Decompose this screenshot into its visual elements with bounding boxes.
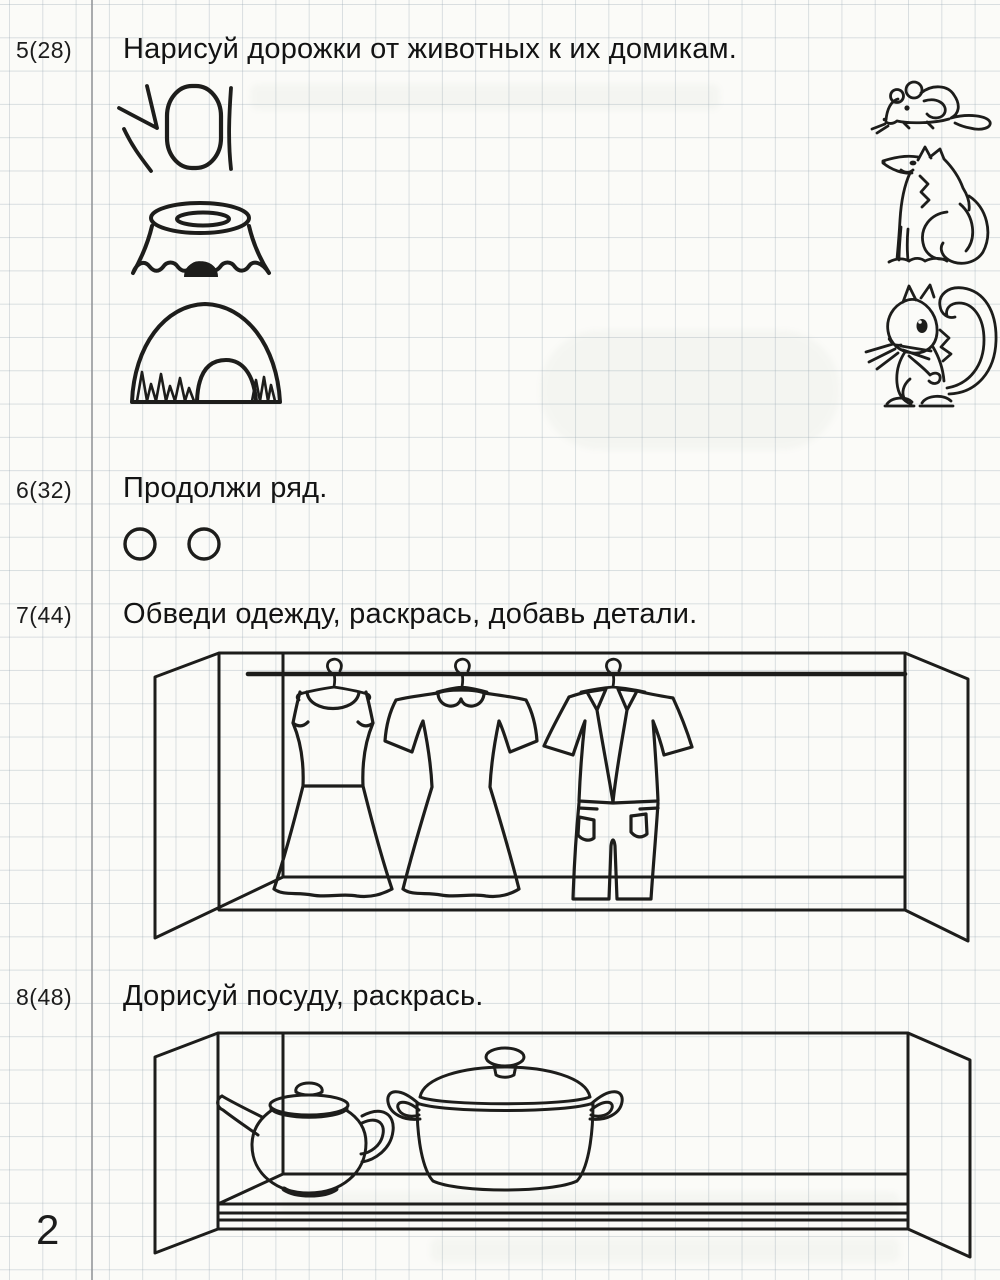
squirrel-eye — [917, 319, 928, 333]
cooking-pot-illustration — [388, 1048, 622, 1190]
wardrobe-illustration — [155, 653, 968, 941]
den-illustration — [132, 304, 280, 402]
shelf-frame — [155, 1033, 970, 1257]
fox-eye — [910, 161, 917, 166]
pot-lid-knob — [486, 1048, 524, 1066]
pot-lid — [420, 1065, 590, 1104]
mouse-illustration — [872, 82, 990, 133]
clothes-hangers — [297, 659, 645, 700]
shirt — [544, 689, 692, 803]
squirrel-illustration — [866, 285, 996, 406]
fox-body — [883, 147, 988, 263]
tree-hollow-opening — [167, 86, 221, 168]
fox-nose — [882, 160, 886, 164]
pattern-circle — [125, 529, 155, 559]
fox-illustration — [882, 147, 988, 263]
mouse-nose — [883, 118, 887, 122]
mouse-ear — [906, 82, 922, 98]
trousers — [573, 803, 658, 899]
squirrel-eye-highlight — [918, 320, 922, 324]
sundress — [274, 692, 392, 897]
stump-top — [151, 203, 249, 233]
pattern-row — [125, 529, 219, 559]
tree-hollow-illustration — [119, 86, 231, 171]
dress-with-collar — [385, 690, 537, 897]
wardrobe-frame — [155, 653, 968, 941]
worksheet-line-art — [0, 0, 1000, 1280]
stump-top-ring — [177, 213, 229, 226]
mouse-eye — [904, 105, 909, 110]
squirrel-nose — [888, 337, 891, 340]
animals-column — [866, 82, 996, 406]
teapot-illustration — [218, 1083, 394, 1195]
stump-burrow-hole — [184, 261, 218, 277]
squirrel-body — [866, 285, 996, 406]
workbook-page: 5(28) Нарисуй дорожки от животных к их д… — [0, 0, 1000, 1280]
teapot-body — [252, 1110, 366, 1193]
dish-shelf-illustration — [155, 1033, 970, 1257]
animal-homes-column — [119, 86, 280, 402]
pot-body — [417, 1103, 593, 1190]
tree-stump-illustration — [133, 203, 269, 277]
pattern-circle — [189, 529, 219, 559]
